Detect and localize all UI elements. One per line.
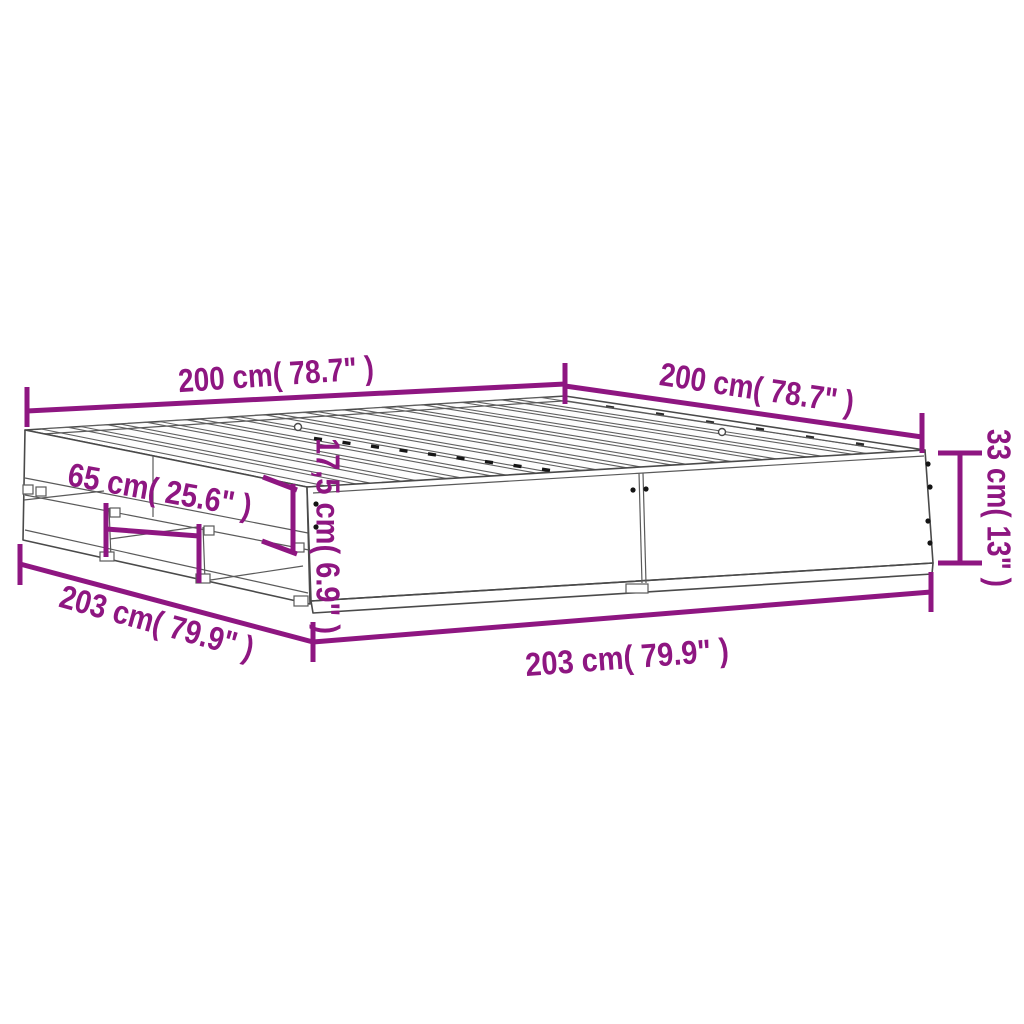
dim-label-bottom-front-length: 203 cm( 79.9" )	[524, 631, 730, 683]
dim-label-right-height: 33 cm( 13" )	[981, 429, 1018, 587]
dim-label-top-left-length: 200 cm( 78.7" )	[177, 349, 375, 400]
frame-hole	[719, 429, 726, 436]
bed-frame-drawing: 200 cm( 78.7" ) 200 cm( 78.7" ) 33 cm( 1…	[0, 0, 1024, 1024]
dim-label-rail-height: 17,5 cm( 6.9" )	[310, 438, 347, 634]
dim-label-left-side-length: 203 cm( 79.9" )	[56, 577, 259, 666]
dimension-diagram: 200 cm( 78.7" ) 200 cm( 78.7" ) 33 cm( 1…	[0, 0, 1024, 1024]
dim-right-height: 33 cm( 13" )	[938, 429, 1018, 587]
frame-hole	[295, 424, 302, 431]
